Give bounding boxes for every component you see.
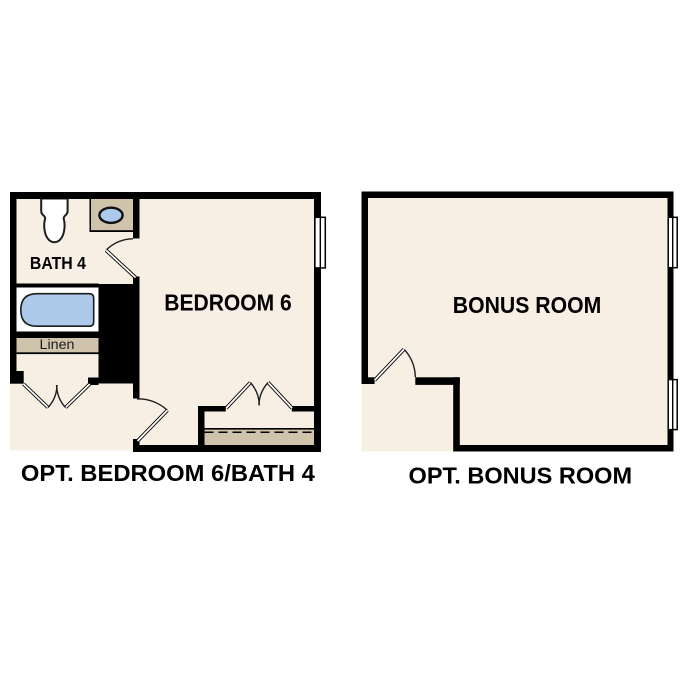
- svg-text:OPT. BEDROOM 6/BATH 4: OPT. BEDROOM 6/BATH 4: [21, 460, 315, 486]
- svg-text:BONUS ROOM: BONUS ROOM: [453, 292, 602, 318]
- svg-text:BEDROOM 6: BEDROOM 6: [164, 289, 292, 315]
- svg-text:Linen: Linen: [40, 337, 75, 352]
- svg-text:BATH 4: BATH 4: [30, 253, 86, 273]
- svg-text:OPT. BONUS ROOM: OPT. BONUS ROOM: [409, 462, 633, 488]
